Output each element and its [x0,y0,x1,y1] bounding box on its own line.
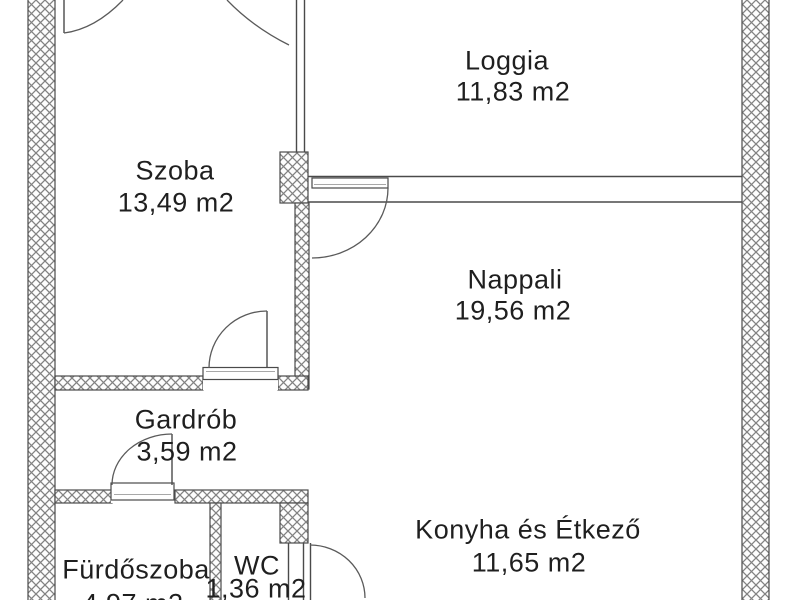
door-arc-szoba-top-left [64,0,123,33]
room-area-konyha: 11,65 m2 [472,548,587,579]
wall-szoba-gardrob-right [278,376,308,390]
room-label-furdoszoba: Fürdőszoba [62,555,210,586]
floor-plan-drawing [0,0,800,600]
wall-outer-right [742,0,769,600]
door-arc-hall-konyha [310,545,365,598]
door-sill-szoba-gardrob [203,368,278,380]
room-label-gardrob: Gardrób [135,405,238,436]
wall-szoba-gardrob-left [55,376,203,390]
wall-gardrob-furdo-left [55,490,112,503]
floor-plan: Szoba 13,49 m2 Loggia 11,83 m2 Nappali 1… [0,0,800,600]
door-arc-szoba-top-right [227,0,289,45]
room-area-gardrob: 3,59 m2 [136,437,237,468]
wall-gardrob-furdo-right [175,490,308,503]
wall-wc-pillar [280,503,308,543]
room-area-furdoszoba: 4,97 m2 [82,589,183,600]
room-area-loggia: 11,83 m2 [456,77,571,108]
door-arc-loggia-nappali [312,188,388,258]
door-arc-szoba-gardrob [209,311,267,368]
room-label-konyha: Konyha és Étkező [415,515,641,546]
door-sill-gardrob-furdo [111,483,174,500]
room-label-nappali: Nappali [467,265,562,296]
wall-outer-left [28,0,55,600]
door-leaf-loggia-nappali [312,178,388,188]
room-area-wc: 1,36 m2 [205,574,306,600]
wall-block-szoba-loggia [280,152,308,203]
room-label-szoba: Szoba [135,156,214,187]
room-label-loggia: Loggia [465,46,549,77]
room-area-nappali: 19,56 m2 [455,296,572,327]
room-area-szoba: 13,49 m2 [118,188,235,219]
wall-szoba-nappali [295,203,309,389]
